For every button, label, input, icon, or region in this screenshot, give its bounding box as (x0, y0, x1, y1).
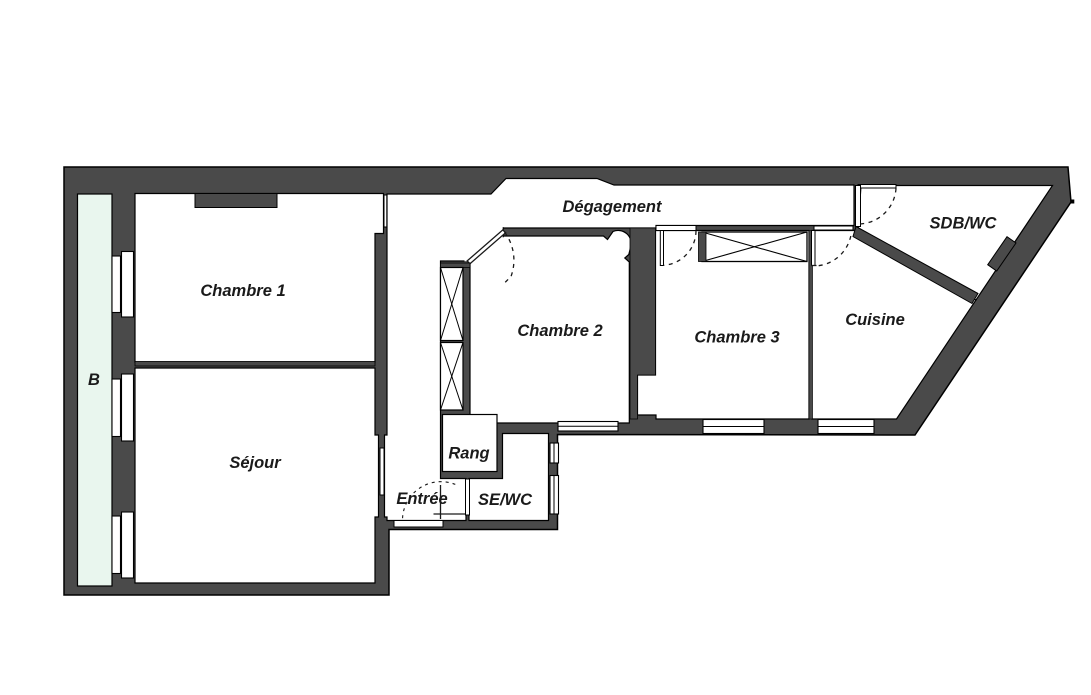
svg-text:Entrée: Entrée (396, 490, 447, 508)
svg-text:Dégagement: Dégagement (562, 198, 663, 216)
svg-text:SDB/WC: SDB/WC (930, 215, 998, 233)
svg-text:SE/WC: SE/WC (478, 491, 533, 509)
svg-text:Séjour: Séjour (229, 454, 282, 472)
svg-text:Chambre 1: Chambre 1 (200, 282, 285, 300)
svg-text:Chambre 3: Chambre 3 (694, 329, 779, 347)
svg-text:B: B (88, 371, 100, 389)
svg-text:Chambre 2: Chambre 2 (517, 322, 602, 340)
svg-text:Cuisine: Cuisine (845, 311, 905, 329)
svg-text:Rang: Rang (448, 445, 489, 463)
